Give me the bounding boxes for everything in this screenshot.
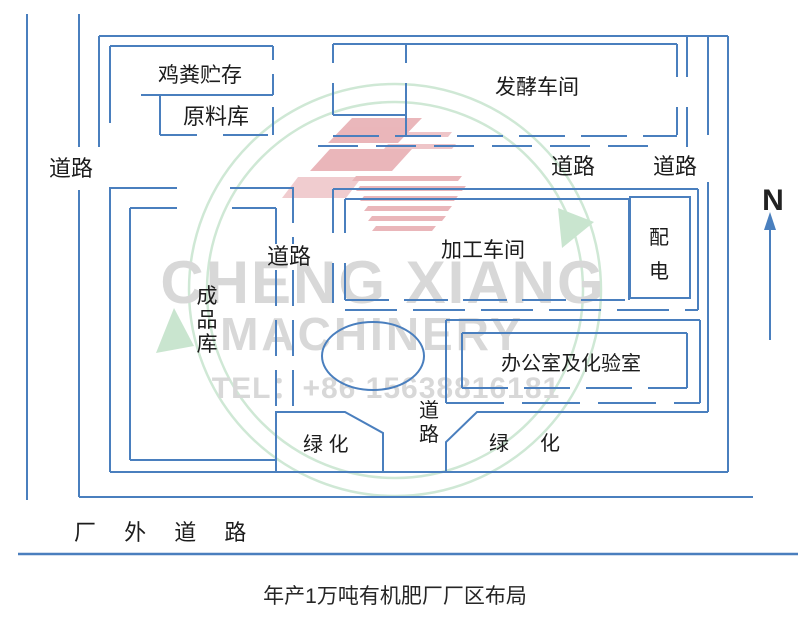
power-room-label-char1: 配: [649, 227, 669, 249]
road-middle-label: 道路: [551, 154, 595, 179]
office-lab-label: 办公室及化验室: [501, 352, 641, 375]
power-room-label-char2: 电: [649, 260, 669, 283]
raw-material-store-label: 原料库: [183, 104, 249, 129]
green-left-label: 绿 化: [303, 433, 349, 456]
processing-workshop-label: 加工车间: [441, 239, 525, 262]
outer-road-label: 厂 外 道 路: [74, 520, 257, 545]
road-center-label: 道路: [267, 244, 311, 269]
fermentation-workshop-label: 发酵车间: [495, 76, 579, 99]
factory-layout-diagram: CHENG XIANG MACHINERY TEL：+86 1563881618…: [0, 0, 800, 620]
finished-goods-label-char2: 品: [197, 309, 218, 332]
watermark-text: CHENG XIANG MACHINERY TEL：+86 1563881618…: [160, 249, 605, 405]
road-east-label: 道路: [653, 154, 697, 179]
road-south-label-char2: 路: [419, 423, 439, 446]
factory-layout-page: CHENG XIANG MACHINERY TEL：+86 1563881618…: [0, 0, 800, 620]
green-right-label-char2: 化: [540, 432, 560, 455]
finished-goods-label-char1: 成: [197, 285, 218, 308]
diagram-caption: 年产1万吨有机肥厂厂区布局: [263, 585, 527, 608]
north-label: N: [762, 184, 784, 217]
north-arrow: N: [762, 184, 784, 340]
finished-goods-label-char3: 库: [197, 333, 218, 356]
road-west-label: 道路: [49, 156, 93, 181]
manure-storage-label: 鸡粪贮存: [158, 64, 242, 87]
green-right-label-char1: 绿: [489, 432, 509, 455]
watermark-red-logo: [282, 118, 466, 231]
watermark-brand-line1: CHENG XIANG: [160, 249, 605, 316]
road-south-label-char1: 道: [419, 399, 439, 422]
